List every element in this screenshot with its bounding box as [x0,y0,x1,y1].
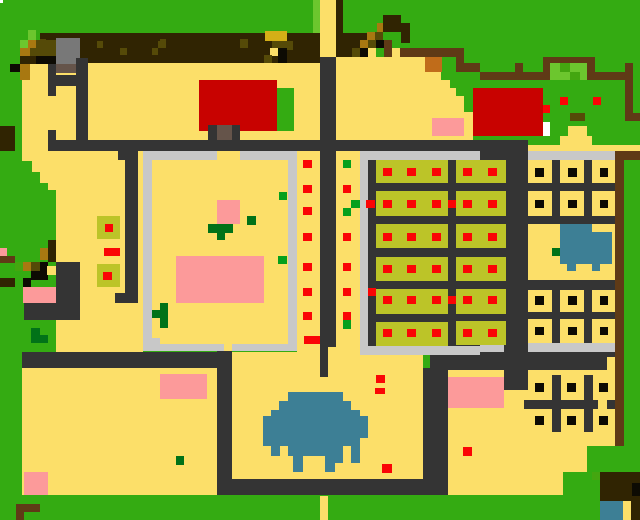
game-world-map [0,0,640,520]
pixel-map-canvas [0,0,640,520]
